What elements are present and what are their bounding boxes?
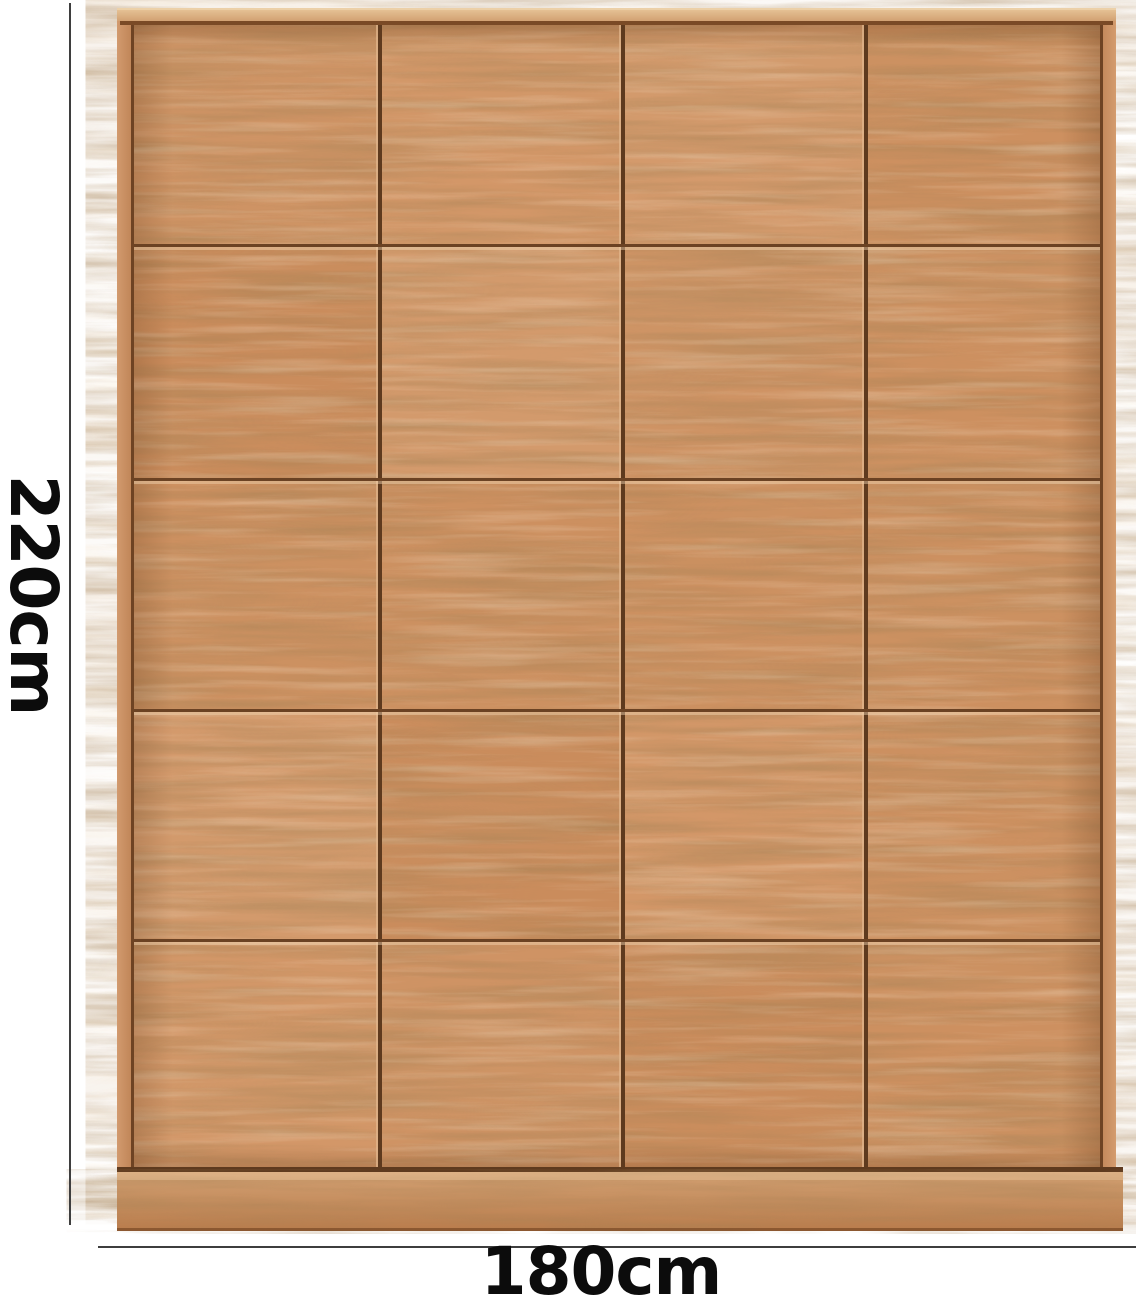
height-dimension-label: 220cm [0,475,66,716]
panel-seam-highlight [134,247,1100,250]
door-seam-highlight [619,25,621,1167]
horizontal-panel-seam [134,939,1100,942]
plinth-bottom-edge [117,1228,1123,1231]
horizontal-panel-seam [134,709,1100,712]
horizontal-panel-seam [134,478,1100,481]
plinth-top-highlight [117,1172,1123,1180]
plinth-top-seam [117,1167,1123,1172]
panel-seam-highlight [134,942,1100,945]
vertical-door-seam [378,25,382,1167]
vertical-door-seam [864,25,868,1167]
product-dimension-image: 220cm 180cm [0,0,1136,1298]
door-seam-highlight [862,25,864,1167]
plinth-grain-overlay [117,1172,1123,1231]
left-door-edge-seam [131,25,134,1167]
side-edge-shading [134,25,1100,1167]
vertical-door-seam [621,25,625,1167]
panel-seam-highlight [134,712,1100,715]
door-seam-highlight [376,25,378,1167]
top-rim-underline [120,21,1113,25]
wardrobe-photo [0,0,1136,1298]
horizontal-panel-seam [134,244,1100,247]
panel-seam-highlight [134,481,1100,484]
width-dimension-label: 180cm [481,1239,722,1298]
right-door-edge-seam [1100,25,1103,1167]
top-rim-highlight [117,8,1116,10]
